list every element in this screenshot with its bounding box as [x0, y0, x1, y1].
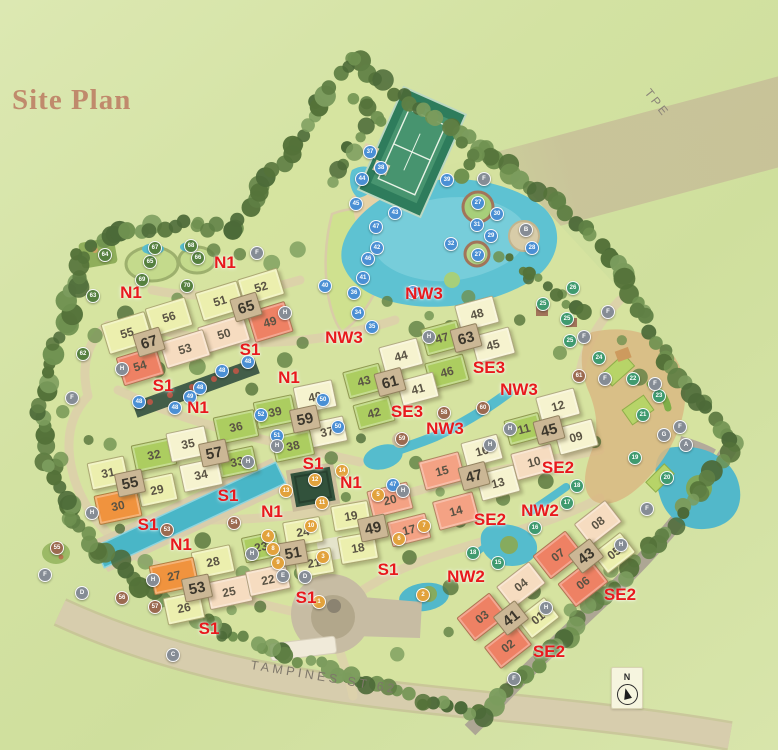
facility-marker: 43 [388, 206, 402, 220]
facility-marker: F [598, 372, 612, 386]
facility-marker: 48 [168, 401, 182, 415]
facility-marker: 60 [476, 401, 490, 415]
facility-marker: F [601, 305, 615, 319]
facility-marker: 48 [215, 364, 229, 378]
facility-marker: 39 [440, 173, 454, 187]
unit-type-label: NW2 [447, 567, 485, 587]
facility-marker: 32 [444, 237, 458, 251]
facility-marker: F [38, 568, 52, 582]
facility-marker: C [166, 648, 180, 662]
unit-type-label: NW3 [426, 419, 464, 439]
facility-marker: 47 [369, 220, 383, 234]
facility-marker: 16 [528, 521, 542, 535]
unit-type-label: S1 [303, 454, 324, 474]
facility-marker: 27 [471, 196, 485, 210]
facility-marker: 13 [279, 484, 293, 498]
facility-marker: H [85, 506, 99, 520]
unit-type-label: NW2 [521, 501, 559, 521]
facility-marker: 46 [361, 252, 375, 266]
unit-type-label: S1 [199, 619, 220, 639]
facility-marker: 40 [318, 279, 332, 293]
facility-marker: 50 [331, 420, 345, 434]
facility-marker: E [276, 569, 290, 583]
facility-marker: 6 [392, 532, 406, 546]
facility-marker: 63 [86, 289, 100, 303]
facility-marker: D [75, 586, 89, 600]
facility-marker: 37 [363, 145, 377, 159]
compass-n-label: N [624, 672, 631, 682]
facility-marker: H [241, 455, 255, 469]
facility-marker: H [115, 362, 129, 376]
facility-marker: 5 [371, 488, 385, 502]
facility-marker: 56 [115, 591, 129, 605]
facility-marker: 64 [98, 248, 112, 262]
facility-marker: G [657, 428, 671, 442]
facility-marker: F [507, 672, 521, 686]
facility-marker: 23 [652, 389, 666, 403]
facility-marker: 55 [50, 541, 64, 555]
unit-type-label: SE3 [473, 358, 505, 378]
facility-marker: 41 [356, 271, 370, 285]
facility-marker: 36 [347, 286, 361, 300]
unit-type-label: S1 [153, 376, 174, 396]
facility-marker: 45 [349, 197, 363, 211]
facility-marker: 8 [266, 542, 280, 556]
facility-marker: 22 [626, 372, 640, 386]
facility-marker: 15 [491, 556, 505, 570]
facility-marker: 28 [525, 241, 539, 255]
facility-marker: 59 [395, 432, 409, 446]
facility-marker: 61 [572, 369, 586, 383]
unit-type-label: SE2 [533, 642, 565, 662]
facility-marker: F [673, 420, 687, 434]
facility-marker: 25 [563, 334, 577, 348]
facility-marker: 67 [148, 241, 162, 255]
facility-marker: 70 [180, 279, 194, 293]
facility-marker: 19 [628, 451, 642, 465]
facility-marker: 66 [191, 251, 205, 265]
unit-type-label: S1 [218, 486, 239, 506]
facility-marker: F [648, 377, 662, 391]
facility-marker: 29 [484, 229, 498, 243]
facility-marker: 57 [148, 600, 162, 614]
facility-marker: D [298, 570, 312, 584]
facility-marker: 31 [470, 218, 484, 232]
facility-marker: F [640, 502, 654, 516]
facility-marker: 38 [374, 161, 388, 175]
unit-type-label: N1 [120, 283, 142, 303]
facility-marker: H [503, 422, 517, 436]
facility-marker: H [245, 547, 259, 561]
unit-type-label: S1 [240, 340, 261, 360]
unit-type-label: N1 [261, 502, 283, 522]
compass-dial [617, 684, 638, 705]
facility-marker: B [519, 223, 533, 237]
facility-marker: 24 [592, 351, 606, 365]
facility-marker: 10 [304, 519, 318, 533]
facility-marker: 48 [132, 395, 146, 409]
facility-marker: 50 [316, 393, 330, 407]
facility-marker: 54 [227, 516, 241, 530]
facility-marker: F [65, 391, 79, 405]
facility-marker: H [539, 601, 553, 615]
facility-marker: F [477, 172, 491, 186]
unit-type-label: N1 [278, 368, 300, 388]
facility-marker: H [278, 306, 292, 320]
unit-type-label: S1 [296, 588, 317, 608]
facility-marker: 68 [184, 239, 198, 253]
facility-marker: 34 [351, 306, 365, 320]
unit-type-label: NW3 [325, 328, 363, 348]
facility-marker: 26 [566, 281, 580, 295]
facility-marker: 21 [636, 408, 650, 422]
facility-marker: 44 [355, 172, 369, 186]
facility-marker: 25 [560, 312, 574, 326]
facility-marker: 52 [254, 408, 268, 422]
unit-type-label: N1 [187, 398, 209, 418]
unit-type-label: N1 [214, 253, 236, 273]
facility-marker: 65 [143, 255, 157, 269]
unit-type-label: N1 [170, 535, 192, 555]
north-compass: N [611, 667, 643, 709]
facility-marker: 12 [308, 473, 322, 487]
page-title: Site Plan [12, 84, 131, 117]
unit-type-label: SE3 [391, 402, 423, 422]
facility-marker: 11 [315, 496, 329, 510]
facility-marker: 2 [416, 588, 430, 602]
facility-marker: A [679, 438, 693, 452]
facility-marker: 58 [437, 406, 451, 420]
facility-marker: 18 [570, 479, 584, 493]
facility-marker: 17 [560, 496, 574, 510]
compass-needle-icon [622, 687, 632, 700]
site-plan-map: Site Plan TPE TAMPINES ST 62 N 555651525… [0, 0, 778, 750]
unit-type-label: NW3 [405, 284, 443, 304]
facility-marker: 4 [261, 529, 275, 543]
facility-marker: 30 [490, 207, 504, 221]
unit-type-label: SE2 [604, 585, 636, 605]
unit-type-label: NW3 [500, 380, 538, 400]
facility-marker: H [396, 484, 410, 498]
unit-type-label: S1 [138, 515, 159, 535]
facility-marker: 7 [417, 519, 431, 533]
unit-type-label: SE2 [474, 510, 506, 530]
facility-marker: 35 [365, 320, 379, 334]
facility-marker: 27 [471, 248, 485, 262]
facility-marker: 25 [536, 297, 550, 311]
unit-type-label: N1 [340, 473, 362, 493]
facility-marker: 18 [466, 546, 480, 560]
facility-marker: H [614, 538, 628, 552]
facility-marker: H [422, 330, 436, 344]
facility-marker: H [270, 439, 284, 453]
facility-marker: H [146, 573, 160, 587]
facility-marker: F [577, 330, 591, 344]
unit-type-label: S1 [378, 560, 399, 580]
facility-marker: H [483, 438, 497, 452]
facility-marker: 62 [76, 347, 90, 361]
facility-marker: F [250, 246, 264, 260]
facility-marker: 20 [660, 471, 674, 485]
unit-type-label: SE2 [542, 458, 574, 478]
facility-marker: 9 [271, 556, 285, 570]
facility-marker: 3 [316, 550, 330, 564]
